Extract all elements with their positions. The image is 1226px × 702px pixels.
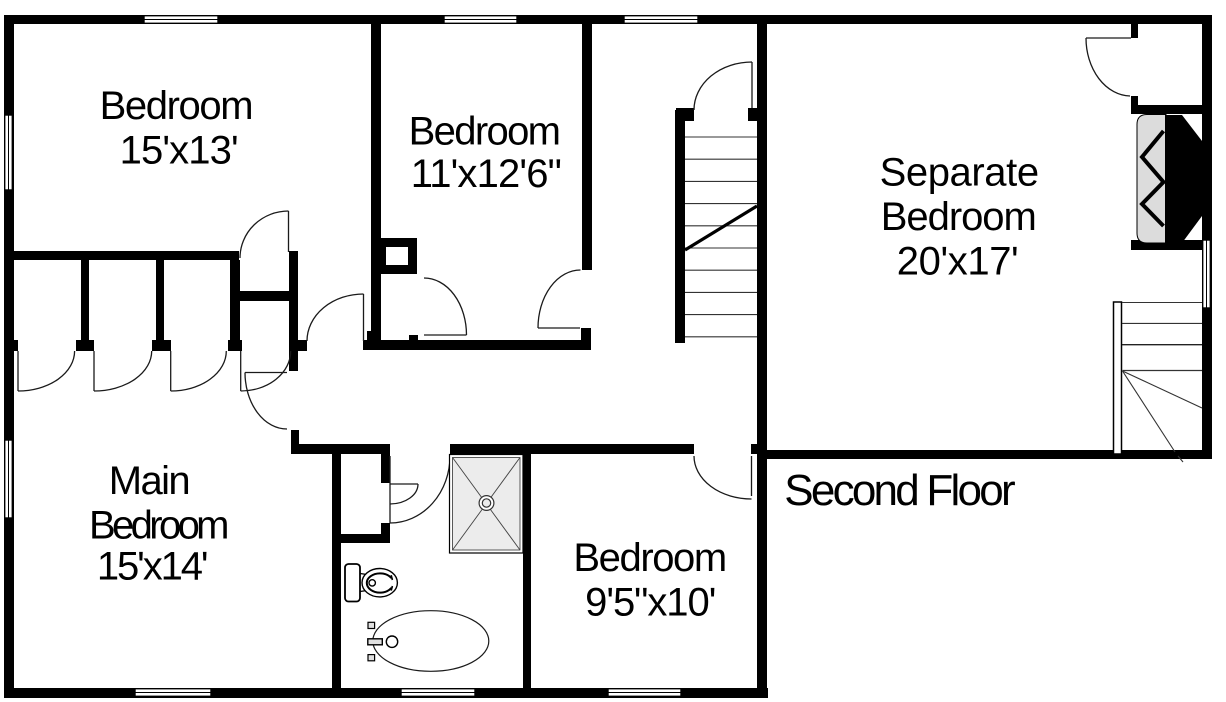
svg-text:Bedroom: Bedroom [100, 84, 254, 128]
svg-text:Bedroom: Bedroom [409, 109, 561, 153]
svg-text:15'x14': 15'x14' [97, 545, 209, 589]
svg-text:Bedroom: Bedroom [881, 195, 1037, 239]
svg-text:15'x13': 15'x13' [120, 129, 239, 173]
svg-text:Second Floor: Second Floor [784, 466, 1015, 515]
svg-text:Separate: Separate [880, 151, 1040, 195]
svg-text:9'5"x10': 9'5"x10' [585, 580, 716, 624]
svg-text:11'x12'6": 11'x12'6" [411, 152, 562, 196]
svg-text:20'x17': 20'x17' [897, 239, 1019, 283]
svg-text:Bedroom: Bedroom [573, 536, 727, 580]
svg-text:Main: Main [109, 459, 191, 503]
svg-text:Bedroom: Bedroom [89, 504, 230, 548]
